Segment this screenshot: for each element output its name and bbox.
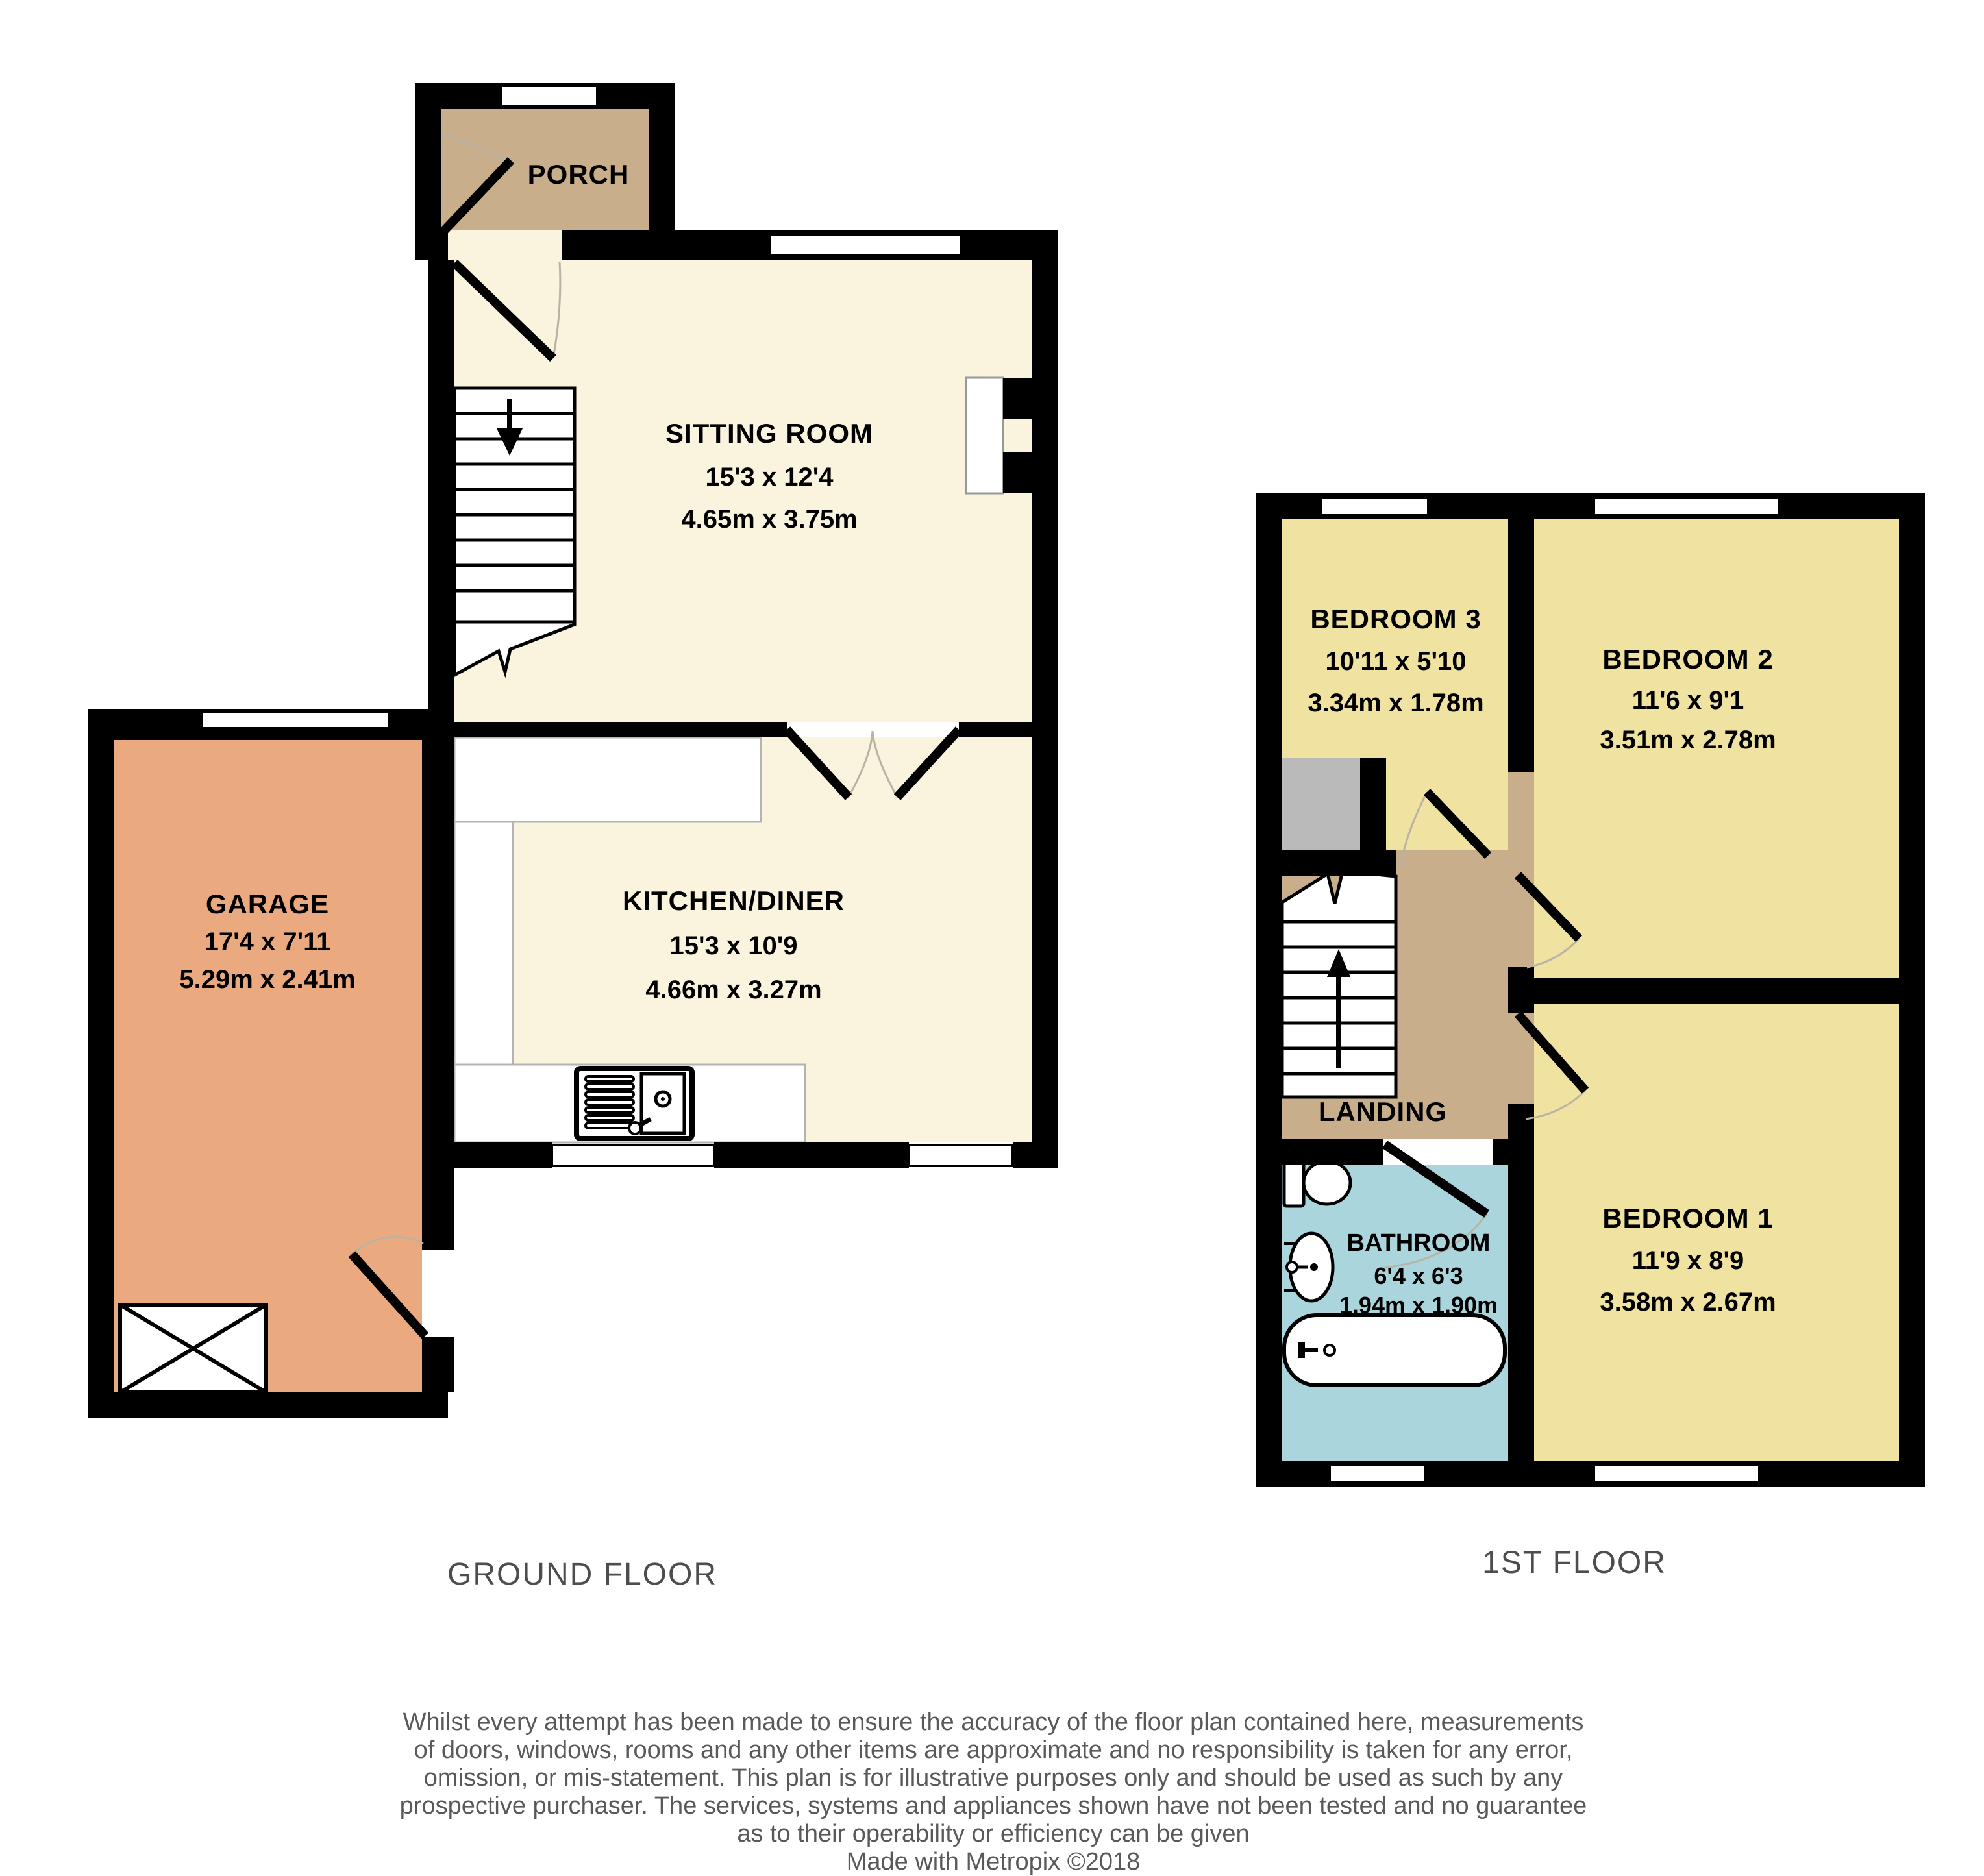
storage-void (1282, 758, 1360, 850)
bedroom1-imperial: 11'9 x 8'9 (1632, 1246, 1744, 1275)
disclaimer-line: as to their operability or efficiency ca… (214, 1820, 1772, 1848)
sitting-room-metric: 4.65m x 3.75m (681, 505, 857, 534)
bedroom1-label: BEDROOM 1 (1602, 1203, 1773, 1233)
garage-label: GARAGE (206, 889, 329, 919)
kitchen-diner-label: KITCHEN/DINER (623, 885, 845, 916)
bathroom-metric: 1.94m x 1.90m (1339, 1292, 1498, 1318)
kitchen-diner-metric: 4.66m x 3.27m (645, 976, 821, 1004)
bathroom-imperial: 6'4 x 6'3 (1374, 1263, 1463, 1289)
disclaimer-line: prospective purchaser. The services, sys… (214, 1792, 1772, 1820)
staircase-down-icon (454, 388, 575, 675)
kitchen-diner-imperial: 15'3 x 10'9 (670, 932, 798, 960)
first-floor-plan: BEDROOM 3 10'11 x 5'10 3.34m x 1.78m BED… (1256, 493, 1925, 1487)
bedroom3-label: BEDROOM 3 (1310, 604, 1481, 634)
kitchen-sink-icon (577, 1068, 692, 1139)
metropix-credit: Made with Metropix ©2018 (214, 1848, 1772, 1876)
ground-floor-caption: GROUND FLOOR (447, 1557, 717, 1592)
toilet-icon (1284, 1159, 1350, 1206)
disclaimer-line: Whilst every attempt has been made to en… (214, 1709, 1772, 1736)
floorplan-canvas: PORCH SITTING ROOM 15'3 x 12'4 4.65m x 3… (0, 0, 1984, 1849)
sink-icon (1284, 1233, 1333, 1301)
bedroom2-metric: 3.51m x 2.78m (1600, 726, 1776, 754)
disclaimer: Whilst every attempt has been made to en… (214, 1709, 1772, 1876)
bath-icon (1284, 1315, 1505, 1385)
kitchen-counter (454, 737, 761, 822)
garage-floor (114, 740, 422, 1392)
floorplan-page: { "colors": { "cream": "#FAF3DD", "tan":… (0, 0, 1984, 1849)
landing-label: LANDING (1319, 1096, 1447, 1127)
porch-doorway-floor (448, 230, 562, 260)
bedroom3-imperial: 10'11 x 5'10 (1325, 647, 1466, 676)
garage-imperial: 17'4 x 7'11 (205, 928, 331, 956)
porch-label: PORCH (528, 159, 630, 190)
bedroom2-imperial: 11'6 x 9'1 (1632, 686, 1744, 715)
first-floor-caption: 1ST FLOOR (1482, 1545, 1667, 1581)
garage-door-cross-icon (120, 1305, 266, 1392)
bathroom-label: BATHROOM (1347, 1229, 1491, 1257)
bedroom3-metric: 3.34m x 1.78m (1308, 689, 1483, 717)
garage-metric: 5.29m x 2.41m (179, 965, 355, 994)
bedroom1-metric: 3.58m x 2.67m (1600, 1288, 1776, 1316)
sitting-room-label: SITTING ROOM (665, 418, 873, 449)
disclaimer-line: omission, or mis-statement. This plan is… (214, 1764, 1772, 1792)
ground-floor-plan: PORCH SITTING ROOM 15'3 x 12'4 4.65m x 3… (88, 83, 1058, 1418)
bedroom2-label: BEDROOM 2 (1602, 644, 1773, 674)
disclaimer-line: of doors, windows, rooms and any other i… (214, 1736, 1772, 1764)
doorway-floor (1508, 772, 1534, 967)
sitting-room-imperial: 15'3 x 12'4 (706, 463, 834, 491)
staircase-up-icon (1282, 871, 1396, 1097)
